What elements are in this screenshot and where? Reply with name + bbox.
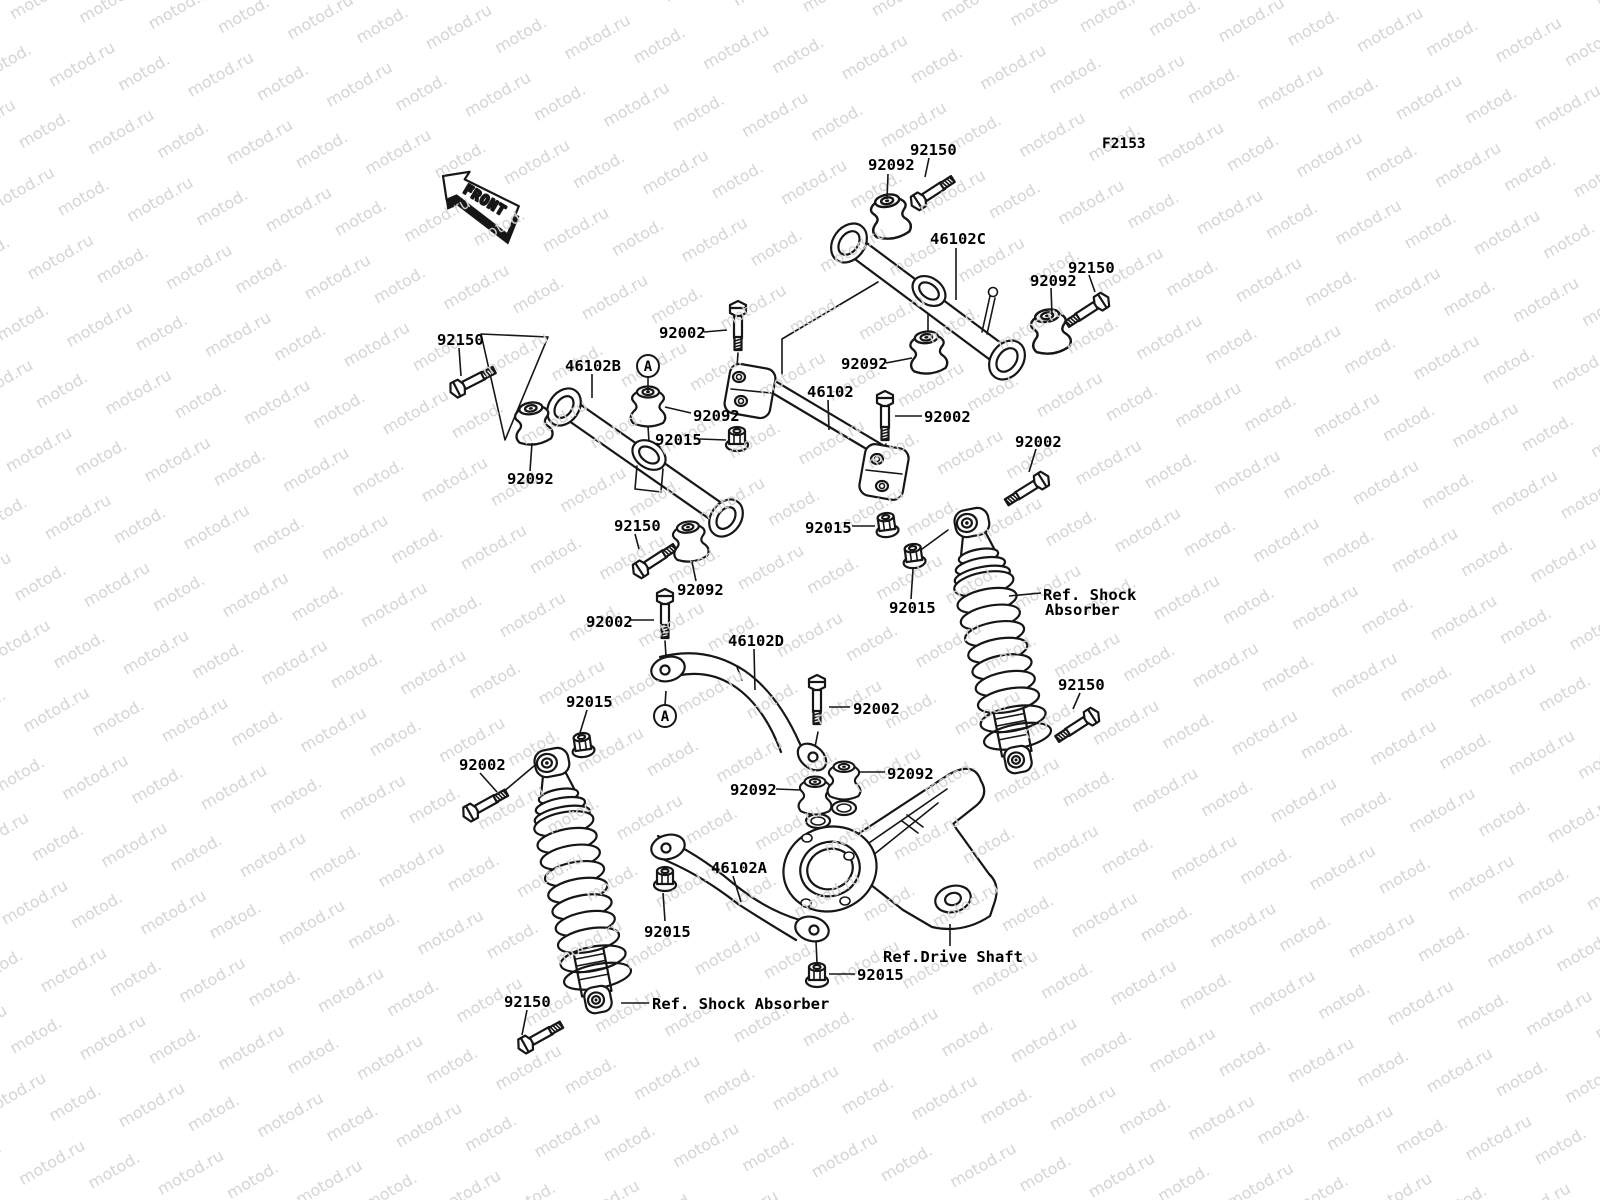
part-label-92092: 92092: [693, 407, 740, 425]
part-label-92150: 92150: [1068, 259, 1115, 277]
part-label-92150: 92150: [614, 517, 661, 535]
part-label-46102b: 46102B: [565, 357, 621, 375]
part-label-92002: 92002: [459, 756, 506, 774]
part-label-46102: 46102: [807, 383, 854, 401]
part-label-92002: 92002: [586, 613, 633, 631]
part-label-92015: 92015: [857, 966, 904, 984]
leader-line: [700, 439, 726, 440]
leader-line: [754, 649, 755, 690]
part-label-46102d: 46102D: [728, 632, 784, 650]
part-label-92002: 92002: [924, 408, 971, 426]
part-label-92092: 92092: [868, 156, 915, 174]
part-label-absorber: Absorber: [1045, 601, 1120, 619]
part-label-92015: 92015: [566, 693, 613, 711]
leader-line: [887, 174, 888, 199]
part-label-92015: 92015: [805, 519, 852, 537]
svg-text:A: A: [644, 359, 653, 375]
watermark-layer: [0, 0, 1600, 1200]
part-label-ref-shock-absorber: Ref. Shock Absorber: [652, 995, 829, 1013]
part-label-92002: 92002: [1015, 433, 1062, 451]
leader-line: [1051, 288, 1052, 315]
part-label-ref-drive-shaft: Ref.Drive Shaft: [883, 948, 1023, 966]
part-label-92002: 92002: [853, 700, 900, 718]
part-label-92150: 92150: [437, 331, 484, 349]
parts-diagram-page: motod.ru motod.ru: [0, 0, 1600, 1200]
svg-text:A: A: [661, 709, 670, 725]
part-label-92150: 92150: [910, 141, 957, 159]
part-label-92092: 92092: [887, 765, 934, 783]
figure-code: F2153: [1102, 136, 1146, 152]
part-label-92092: 92092: [507, 470, 554, 488]
leader-line: [828, 400, 829, 430]
leader-line: [776, 789, 801, 790]
part-label-92092: 92092: [841, 355, 888, 373]
part-label-92092: 92092: [730, 781, 777, 799]
part-label-46102a: 46102A: [711, 859, 768, 877]
part-label-92150: 92150: [1058, 676, 1105, 694]
part-label-92002: 92002: [659, 324, 706, 342]
part-label-92015: 92015: [644, 923, 691, 941]
leader-line: [665, 691, 666, 705]
part-label-92015: 92015: [655, 431, 702, 449]
part-label-92092: 92092: [677, 581, 724, 599]
part-label-92015: 92015: [889, 599, 936, 617]
part-label-46102c: 46102C: [930, 230, 986, 248]
parts-diagram-canvas: motod.ru motod.ru: [0, 0, 1600, 1200]
part-label-92150: 92150: [504, 993, 551, 1011]
